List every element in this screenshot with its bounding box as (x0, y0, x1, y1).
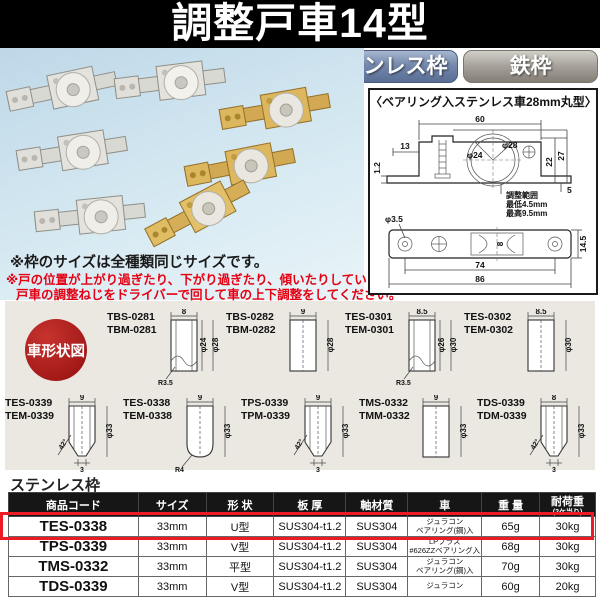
product-photo-panel: ※枠のサイズは全種類同じサイズです。 ※戸の位置が上がり過ぎたり、下がり過ぎたり… (0, 48, 364, 300)
weight-value: 70g (482, 557, 540, 577)
col-plate-thickness: 板 厚 (274, 493, 346, 517)
svg-text:調整範囲: 調整範囲 (506, 190, 538, 200)
model-code: TDM-0339 (477, 410, 527, 423)
svg-text:φ28: φ28 (326, 337, 335, 352)
note-frame-size: ※枠のサイズは全種類同じサイズです。 (10, 251, 268, 272)
model-code: TEM-0302 (464, 324, 514, 337)
svg-text:φ33: φ33 (577, 423, 586, 438)
wheel-shape-tes0338: TES-0338 TEM-0338 9 R4 φ33 (123, 387, 241, 473)
svg-text:9: 9 (301, 309, 306, 316)
model-code: TES-0302 (464, 311, 514, 324)
svg-text:最高9.5mm: 最高9.5mm (506, 208, 547, 218)
col-wheel: 車 (408, 493, 482, 517)
model-code: TBS-0281 (107, 311, 157, 324)
svg-text:60: 60 (475, 114, 485, 124)
product-code: TMS-0332 (9, 557, 139, 577)
svg-text:86: 86 (475, 274, 485, 284)
wheel-profile-v-icon: 9 42° 3 φ33 (55, 395, 119, 473)
svg-text:8: 8 (552, 395, 557, 402)
svg-text:R3.5: R3.5 (158, 380, 173, 387)
table-row-tds-0339: TDS-0339 33mm V型 SUS304-t1.2 SUS304 ジュラコ… (9, 577, 596, 597)
load-value: 30kg (540, 557, 596, 577)
shape-value: 平型 (206, 557, 274, 577)
product-code: TDS-0339 (9, 577, 139, 597)
svg-text:27: 27 (556, 151, 566, 161)
svg-text:φ28: φ28 (502, 140, 518, 150)
svg-text:8.5: 8.5 (416, 309, 428, 316)
svg-text:9: 9 (316, 395, 321, 402)
product-photo (0, 48, 364, 248)
catalog-page: 調整戸車14型 ステンレス枠 鉄枠 (0, 0, 600, 600)
svg-text:13: 13 (400, 141, 410, 151)
shaft-value: SUS304 (346, 517, 408, 537)
plate-value: SUS304-t1.2 (274, 517, 346, 537)
svg-text:φ3.5: φ3.5 (385, 214, 403, 224)
wheel-shape-tes0302: TES-0302 TEM-0302 8.5 φ30 (464, 301, 583, 387)
model-code: TEM-0339 (5, 410, 55, 423)
note-adjustment-line1: ※戸の位置が上がり過ぎたり、下がり過ぎたり、傾いたりしている場合は、 (6, 273, 429, 288)
model-code: TBM-0282 (226, 324, 276, 337)
plate-value: SUS304-t1.2 (274, 577, 346, 597)
svg-text:φ24: φ24 (467, 150, 483, 160)
roller-image (5, 62, 120, 120)
wheel-profile-v-icon: 9 42° 3 φ33 (291, 395, 355, 473)
product-code: TPS-0339 (9, 537, 139, 557)
svg-text:φ30: φ30 (449, 337, 458, 352)
size-value: 33mm (138, 537, 206, 557)
wheel-profile-flat-icon: 9 φ28 (276, 309, 340, 387)
note-adjustment-line2: 戸車の調整ねじをドライバーで回して車の上下調整をしてください。 (6, 288, 429, 303)
size-value: 33mm (138, 577, 206, 597)
svg-text:φ33: φ33 (223, 423, 232, 438)
model-code: TPM-0339 (241, 410, 291, 423)
table-header-row: 商品コード サイズ 形 状 板 厚 軸材質 車 重 量 耐荷重 (2ケ当り) (9, 493, 596, 517)
wheel-profile-flat-icon: 8.5 φ30 (514, 309, 578, 387)
model-code: TES-0338 (123, 397, 173, 410)
wheel-value: ジュラコンベアリング(鋼)入 (408, 517, 482, 537)
wheel-shape-tps0339: TPS-0339 TPM-0339 9 42° 3 φ33 (241, 387, 359, 473)
model-code: TES-0339 (5, 397, 55, 410)
svg-text:φ26: φ26 (437, 337, 446, 352)
shape-value: U型 (206, 517, 274, 537)
svg-text:3: 3 (316, 467, 320, 473)
size-value: 33mm (138, 517, 206, 537)
svg-text:R4: R4 (175, 467, 184, 473)
roller-image (15, 127, 129, 180)
wheel-profile-round-icon: 9 R4 φ33 (173, 395, 237, 473)
load-capacity-note: (2ケ当り) (540, 509, 595, 516)
load-value: 30kg (540, 517, 596, 537)
svg-text:R3.5: R3.5 (396, 380, 411, 387)
svg-text:1.2: 1.2 (372, 162, 382, 174)
svg-text:φ28: φ28 (211, 337, 220, 352)
page-header: 調整戸車14型 (0, 0, 600, 48)
wheel-profile-u-icon: 8 R3.5 φ24 φ28 (157, 309, 221, 387)
shape-value: V型 (206, 577, 274, 597)
wheel-shape-tes0339: TES-0339 TEM-0339 9 42° 3 φ33 (5, 387, 123, 473)
model-code: TMM-0332 (359, 410, 409, 423)
svg-text:14.5: 14.5 (578, 235, 588, 252)
svg-text:22: 22 (544, 157, 554, 167)
col-shape: 形 状 (206, 493, 274, 517)
svg-text:8: 8 (182, 309, 187, 316)
svg-text:9: 9 (198, 395, 203, 402)
wheel-value: ジュラコン (408, 577, 482, 597)
model-code: TBS-0282 (226, 311, 276, 324)
technical-drawing: 〈ベアリング入ステンレス車28mm丸型〉 φ24 φ28 6 (368, 88, 598, 295)
plate-value: SUS304-t1.2 (274, 537, 346, 557)
roller-image (218, 84, 333, 139)
shaft-value: SUS304 (346, 557, 408, 577)
roller-image (34, 193, 147, 240)
svg-text:3: 3 (552, 467, 556, 473)
dimension-drawing: φ24 φ28 60 13 1.2 22 27 5 (372, 112, 594, 294)
svg-text:φ33: φ33 (459, 423, 468, 438)
svg-text:8.5: 8.5 (535, 309, 547, 316)
wheel-shape-tes0301: TES-0301 TEM-0301 8.5 R3.5 φ26 φ30 (345, 301, 464, 387)
model-code: TBM-0281 (107, 324, 157, 337)
model-code: TMS-0332 (359, 397, 409, 410)
shaft-value: SUS304 (346, 537, 408, 557)
load-value: 30kg (540, 537, 596, 557)
weight-value: 60g (482, 577, 540, 597)
weight-value: 68g (482, 537, 540, 557)
note-adjustment: ※戸の位置が上がり過ぎたり、下がり過ぎたり、傾いたりしている場合は、 戸車の調整… (6, 273, 429, 302)
col-weight: 重 量 (482, 493, 540, 517)
wheel-profile-v-icon: 8 42° 3 φ33 (527, 395, 591, 473)
spec-table: 商品コード サイズ 形 状 板 厚 軸材質 車 重 量 耐荷重 (2ケ当り) T… (8, 492, 596, 597)
svg-text:3: 3 (80, 467, 84, 473)
wheel-shape-tbs0282: TBS-0282 TBM-0282 9 φ28 (226, 301, 345, 387)
size-value: 33mm (138, 557, 206, 577)
svg-text:9: 9 (80, 395, 85, 402)
table-row-tps-0339: TPS-0339 33mm V型 SUS304-t1.2 SUS304 LPブラ… (9, 537, 596, 557)
load-value: 20kg (540, 577, 596, 597)
wheel-shape-section: 車形状図 TBS-0281 TBM-0281 8 R3.5 φ24 (5, 301, 595, 470)
svg-text:9: 9 (434, 395, 439, 402)
svg-text:74: 74 (475, 260, 485, 270)
svg-text:φ24: φ24 (199, 337, 208, 352)
svg-text:φ30: φ30 (564, 337, 573, 352)
col-size: サイズ (138, 493, 206, 517)
wheel-shape-badge: 車形状図 (25, 319, 87, 381)
col-product-code: 商品コード (9, 493, 139, 517)
model-code: TEM-0338 (123, 410, 173, 423)
svg-text:φ33: φ33 (341, 423, 350, 438)
shaft-value: SUS304 (346, 577, 408, 597)
model-code: TDS-0339 (477, 397, 527, 410)
wheel-shape-tds0339: TDS-0339 TDM-0339 8 42° 3 φ33 (477, 387, 595, 473)
wheel-shape-tms0332: TMS-0332 TMM-0332 9 φ33 (359, 387, 477, 473)
model-code: TPS-0339 (241, 397, 291, 410)
wheel-shape-tbs0281: TBS-0281 TBM-0281 8 R3.5 φ24 φ28 (107, 301, 226, 387)
table-row-tms-0332: TMS-0332 33mm 平型 SUS304-t1.2 SUS304 ジュラコ… (9, 557, 596, 577)
wheel-profile-u-icon: 8.5 R3.5 φ26 φ30 (395, 309, 459, 387)
tab-iron-frame[interactable]: 鉄枠 (463, 50, 598, 83)
wheel-value: ジュラコンベアリング(鋼)入 (408, 557, 482, 577)
model-code: TEM-0301 (345, 324, 395, 337)
roller-image (113, 58, 227, 107)
svg-text:φ33: φ33 (105, 423, 114, 438)
col-load-capacity: 耐荷重 (2ケ当り) (540, 493, 596, 517)
wheel-value: LPブラス#626ZZベアリング入 (408, 537, 482, 557)
svg-text:8: 8 (496, 241, 505, 246)
shape-value: V型 (206, 537, 274, 557)
product-code: TES-0338 (9, 517, 139, 537)
model-code: TES-0301 (345, 311, 395, 324)
page-title: 調整戸車14型 (0, 0, 600, 47)
wheel-profile-flat-icon: 9 φ33 (409, 395, 473, 473)
svg-text:5: 5 (567, 185, 572, 195)
drawing-title: 〈ベアリング入ステンレス車28mm丸型〉 (370, 93, 596, 110)
table-row-tes-0338: TES-0338 33mm U型 SUS304-t1.2 SUS304 ジュラコ… (9, 517, 596, 537)
col-shaft-material: 軸材質 (346, 493, 408, 517)
plate-value: SUS304-t1.2 (274, 557, 346, 577)
weight-value: 65g (482, 517, 540, 537)
svg-text:最低4.5mm: 最低4.5mm (506, 199, 547, 209)
